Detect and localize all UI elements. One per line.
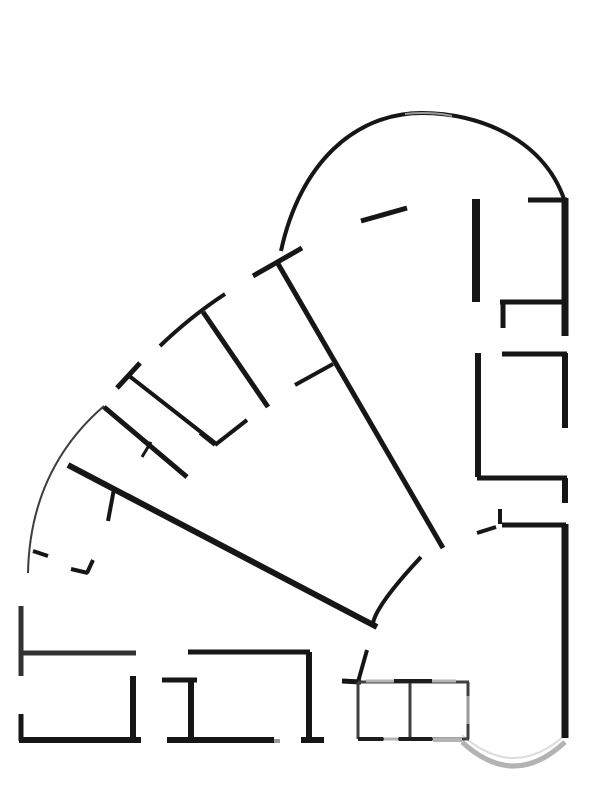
arc-foot-jamb-a xyxy=(71,569,88,573)
radial-c-stem xyxy=(104,407,187,477)
rt-door-diagonal xyxy=(477,527,496,533)
top-slant-stub xyxy=(361,208,407,221)
arc-foot-tick xyxy=(33,551,48,556)
radial-b-crossbar xyxy=(160,294,225,346)
big-top-arc xyxy=(281,113,564,251)
architectural-floor-plan xyxy=(0,0,613,805)
core-entry-stub-v xyxy=(358,650,367,682)
inner-center-arc xyxy=(373,557,421,623)
radial-a-crossbar xyxy=(253,248,302,276)
radial-e-tick xyxy=(108,489,114,521)
floor-plan-walls-layer xyxy=(19,113,567,766)
radial-b-stem xyxy=(203,312,268,407)
radial-a-stem xyxy=(277,262,443,548)
radial-d-crossbar xyxy=(117,363,140,388)
left-thin-arc xyxy=(28,406,104,573)
radial-b-end-wall xyxy=(215,420,247,445)
floor-plan-page xyxy=(0,0,613,805)
radial-a-tick xyxy=(295,364,333,385)
arc-foot-jamb-b xyxy=(87,560,93,573)
radial-d-stem xyxy=(128,375,215,443)
